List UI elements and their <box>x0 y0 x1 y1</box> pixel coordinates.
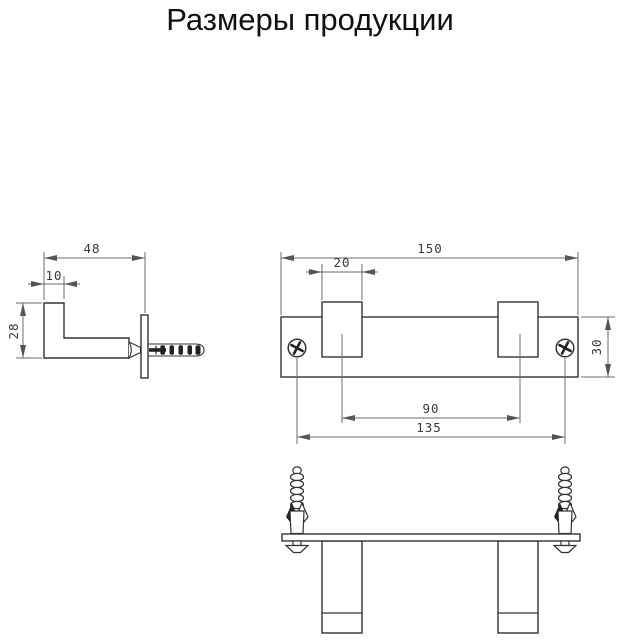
wall-plug-icon <box>148 344 204 356</box>
dimension-28: 28 <box>6 303 42 358</box>
dim-label-10: 10 <box>45 268 62 283</box>
hook-post-right <box>498 541 538 633</box>
hook-profile-outline <box>44 303 129 358</box>
hook-block-right <box>498 302 538 357</box>
bottom-view <box>282 467 580 633</box>
phillips-screw-icon <box>556 339 574 357</box>
mounting-bar <box>282 534 580 541</box>
dimension-20: 20 <box>306 255 378 300</box>
side-view: 48 10 28 <box>6 241 204 378</box>
product-dimensions-drawing: Размеры продукции 48 <box>0 0 621 640</box>
hook-post-left <box>322 541 362 633</box>
dimension-10: 10 <box>28 268 80 299</box>
dim-label-135: 135 <box>416 420 442 435</box>
phillips-screw-icon <box>288 339 306 357</box>
dim-label-28: 28 <box>6 322 21 339</box>
dim-label-150: 150 <box>417 241 443 256</box>
dimension-30: 30 <box>581 317 615 377</box>
dim-label-48: 48 <box>83 241 100 256</box>
dim-label-30: 30 <box>589 338 604 355</box>
dim-label-20: 20 <box>333 255 350 270</box>
front-view: 150 20 30 90 135 <box>281 241 615 444</box>
mounting-plate-edge <box>141 315 148 378</box>
page-title: Размеры продукции <box>166 2 454 37</box>
screw-head-icon <box>129 342 141 358</box>
dim-label-90: 90 <box>422 401 439 416</box>
